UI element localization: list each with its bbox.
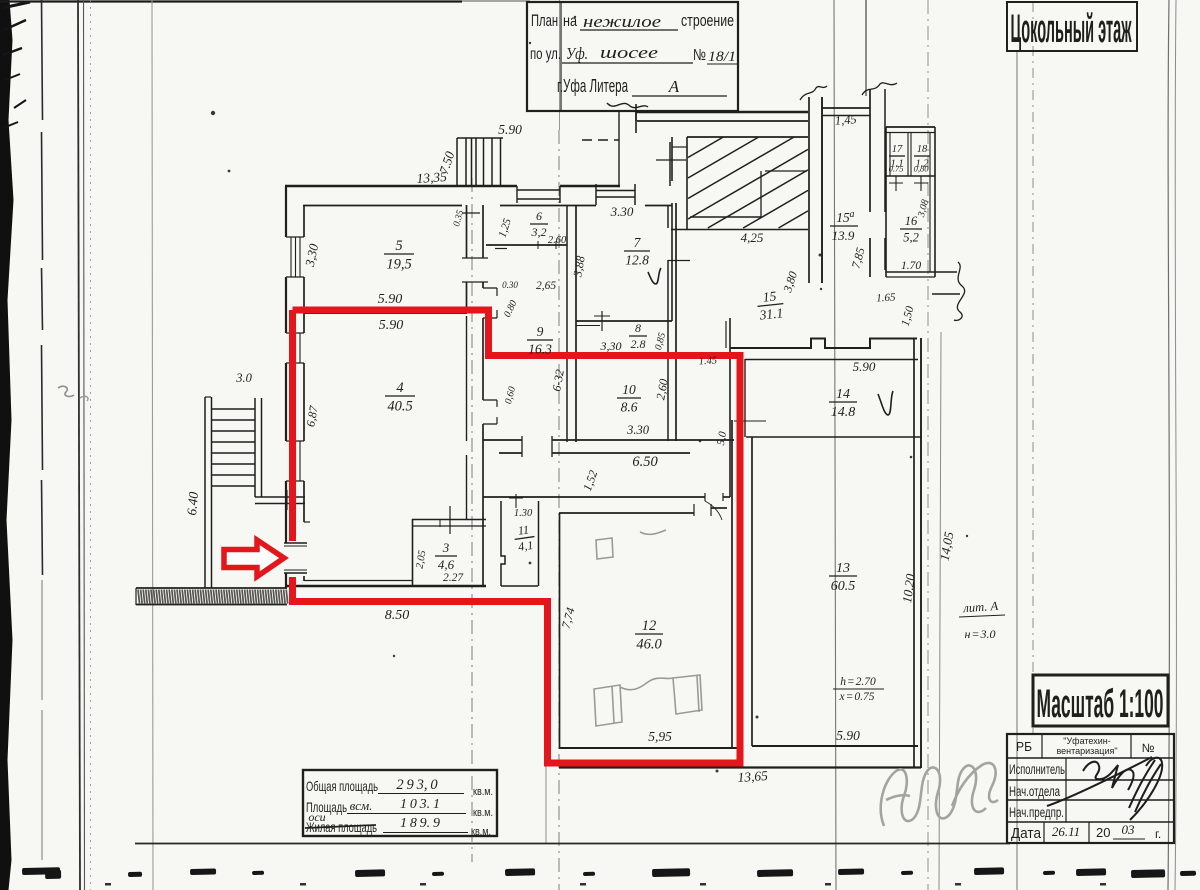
svg-text:4,6: 4,6 [438, 557, 455, 572]
svg-text:12.8: 12.8 [625, 253, 649, 268]
svg-text:4,1: 4,1 [517, 538, 534, 554]
svg-text:Нач.предпр.: Нач.предпр. [1009, 805, 1064, 820]
svg-text:a: a [850, 209, 855, 220]
svg-text:Дата: Дата [1011, 826, 1042, 842]
svg-text:18: 18 [917, 144, 928, 155]
svg-text:5,95: 5,95 [648, 729, 672, 744]
svg-text:1.30: 1.30 [514, 508, 533, 519]
svg-text:Уф.: Уф. [566, 44, 588, 63]
svg-text:03: 03 [1122, 822, 1136, 837]
svg-text:8.50: 8.50 [385, 608, 410, 623]
svg-text:13,35: 13,35 [416, 169, 448, 186]
svg-text:г.: г. [1155, 827, 1161, 841]
svg-text:1.45: 1.45 [698, 356, 717, 368]
svg-text:1 8 9. 9: 1 8 9. 9 [400, 816, 440, 831]
svg-text:2.27: 2.27 [443, 572, 464, 584]
svg-text:6: 6 [536, 209, 542, 223]
svg-text:Цокольный этаж: Цокольный этаж [1011, 7, 1132, 51]
svg-text:кв.м.: кв.м. [473, 807, 493, 819]
svg-text:26.11: 26.11 [1052, 824, 1080, 839]
svg-text:на: на [563, 13, 577, 30]
svg-text:1,45: 1,45 [834, 112, 857, 127]
svg-text:№: № [1142, 741, 1155, 755]
svg-text:2 9 3, 0: 2 9 3, 0 [396, 777, 438, 793]
svg-text:6.40: 6.40 [184, 491, 201, 516]
svg-text:2.60: 2.60 [548, 235, 567, 246]
svg-text:2,65: 2,65 [536, 280, 556, 292]
svg-text:40.5: 40.5 [387, 399, 412, 415]
svg-text:всм.: всм. [350, 798, 373, 813]
svg-text:15: 15 [762, 288, 777, 304]
svg-text:14: 14 [836, 387, 850, 402]
svg-text:16: 16 [905, 214, 918, 228]
svg-text:1.65: 1.65 [876, 291, 896, 304]
svg-text:4,25: 4,25 [741, 230, 764, 245]
svg-text:3.30: 3.30 [626, 423, 650, 437]
svg-text:№: № [693, 47, 706, 64]
svg-text:кв.м.: кв.м. [471, 826, 491, 838]
svg-text:9: 9 [537, 324, 544, 339]
svg-text:8: 8 [635, 321, 641, 335]
svg-text:18/1: 18/1 [708, 49, 736, 65]
svg-text:"Уфатехин-: "Уфатехин- [1063, 736, 1110, 746]
svg-text:46.0: 46.0 [636, 637, 662, 653]
svg-text:h = 2.70: h = 2.70 [840, 676, 876, 688]
svg-text:вентаризация": вентаризация" [1056, 746, 1117, 756]
svg-text:0.30: 0.30 [502, 280, 518, 290]
svg-text:РБ: РБ [1016, 739, 1032, 754]
svg-text:16.3: 16.3 [528, 342, 552, 357]
svg-text:1.70: 1.70 [901, 260, 921, 272]
svg-text:5.90: 5.90 [836, 728, 860, 743]
svg-text:лит. А: лит. А [962, 599, 999, 615]
svg-text:по ул.: по ул. [530, 46, 561, 63]
svg-text:3,30: 3,30 [600, 339, 622, 353]
svg-text:5.90: 5.90 [378, 292, 403, 307]
svg-text:строение: строение [681, 11, 734, 30]
svg-text:кв.м.: кв.м. [473, 786, 493, 798]
svg-text:14.8: 14.8 [831, 405, 856, 420]
svg-text:Общая площадь: Общая площадь [306, 778, 378, 794]
svg-text:4: 4 [396, 380, 403, 396]
svg-text:11: 11 [517, 522, 530, 537]
svg-text:13,65: 13,65 [737, 768, 769, 785]
svg-text:А: А [668, 77, 680, 96]
svg-text:1 0 3. 1: 1 0 3. 1 [400, 797, 440, 812]
svg-text:5,2: 5,2 [903, 231, 919, 245]
svg-text:5.90: 5.90 [498, 122, 522, 137]
svg-text:12: 12 [642, 618, 657, 634]
svg-text:10: 10 [622, 382, 636, 397]
svg-text:Масштаб 1:100: Масштаб 1:100 [1037, 682, 1164, 726]
svg-text:2.8: 2.8 [631, 337, 646, 351]
svg-text:3: 3 [442, 540, 450, 555]
svg-text:5: 5 [395, 238, 402, 254]
svg-text:20: 20 [1096, 825, 1110, 840]
svg-text:шосее: шосее [600, 43, 659, 62]
svg-text:г.Уфа Литера: г.Уфа Литера [557, 76, 629, 96]
svg-text:3,2: 3,2 [531, 225, 547, 239]
svg-text:1.2: 1.2 [915, 159, 929, 170]
svg-text:3.30: 3.30 [610, 204, 634, 219]
svg-text:Исполнитель: Исполнитель [1009, 762, 1065, 777]
svg-text:1.1: 1.1 [890, 159, 903, 170]
svg-text:5.90: 5.90 [853, 359, 876, 374]
svg-text:План: План [531, 11, 558, 30]
svg-text:3.0: 3.0 [235, 371, 252, 385]
svg-text:19,5: 19,5 [386, 257, 411, 273]
svg-text:Нач.отдела: Нач.отдела [1009, 784, 1060, 799]
svg-text:5,0: 5,0 [715, 430, 729, 446]
svg-text:5.90: 5.90 [379, 318, 404, 333]
svg-text:x = 0.75: x = 0.75 [839, 691, 875, 703]
svg-text:15: 15 [836, 210, 850, 225]
svg-text:31.1: 31.1 [758, 305, 784, 322]
svg-text:н = 3.0: н = 3.0 [964, 627, 995, 641]
svg-text:нежилое: нежилое [583, 12, 662, 31]
svg-text:13: 13 [836, 561, 850, 576]
svg-text:17: 17 [892, 144, 903, 155]
svg-text:60.5: 60.5 [831, 579, 856, 594]
svg-text:13.9: 13.9 [832, 228, 855, 243]
svg-text:8.6: 8.6 [621, 400, 638, 415]
svg-text:6.50: 6.50 [632, 454, 658, 470]
